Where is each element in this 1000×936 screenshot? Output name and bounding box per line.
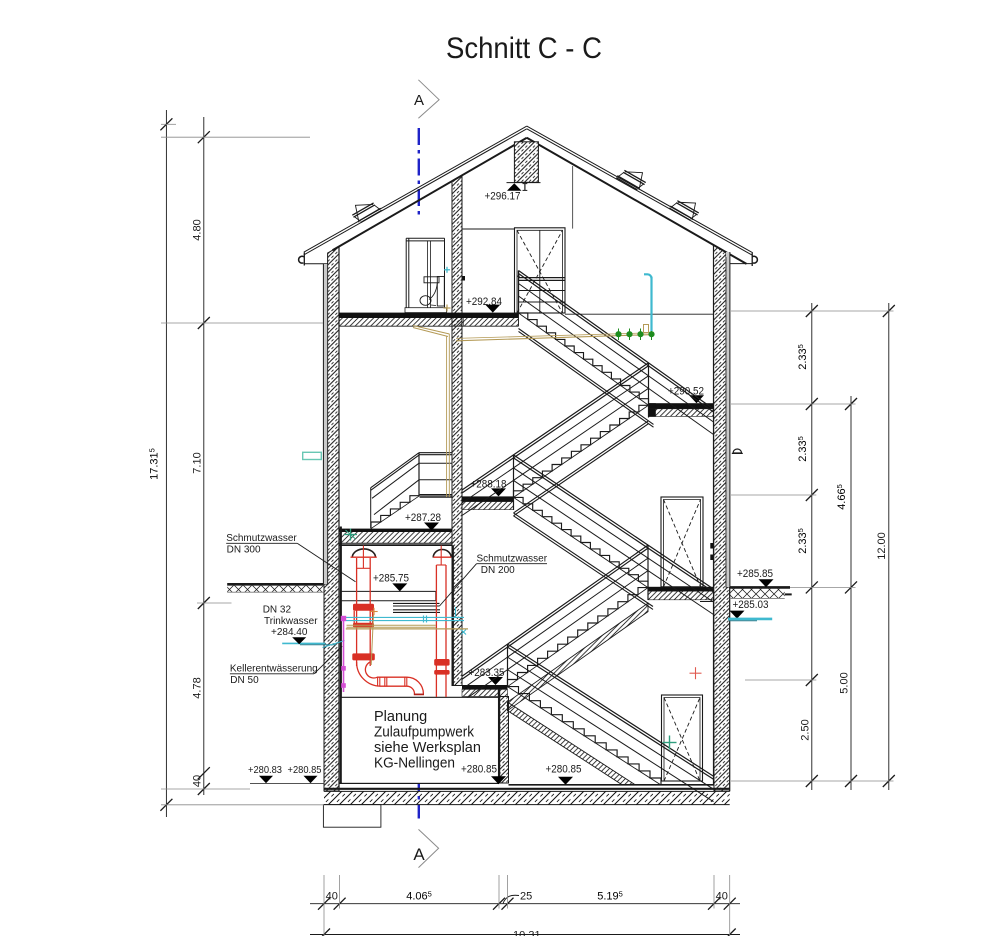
svg-text:+280.85: +280.85: [288, 764, 322, 776]
svg-text:+285.03: +285.03: [733, 599, 769, 611]
svg-text:2.335: 2.335: [796, 528, 809, 554]
svg-text:7.10: 7.10: [191, 452, 203, 473]
svg-text:Schmutzwasser: Schmutzwasser: [226, 533, 297, 544]
svg-text:+280.83: +280.83: [248, 764, 282, 776]
svg-text:4.80: 4.80: [191, 219, 203, 240]
svg-text:A: A: [414, 92, 424, 109]
svg-text:+284.40: +284.40: [271, 627, 308, 638]
svg-text:5.195: 5.195: [597, 890, 623, 903]
svg-text:DN 32: DN 32: [263, 604, 292, 615]
svg-text:Schmutzwasser: Schmutzwasser: [477, 554, 548, 565]
svg-text:Trinkwasser: Trinkwasser: [264, 616, 318, 627]
svg-text:2.335: 2.335: [796, 436, 809, 462]
svg-text:12.00: 12.00: [876, 532, 888, 560]
svg-text:40: 40: [716, 891, 728, 903]
svg-text:+280.85: +280.85: [546, 764, 582, 776]
svg-text:Schnitt C - C: Schnitt C - C: [446, 32, 602, 65]
svg-text:+280.85: +280.85: [461, 764, 497, 776]
svg-text:+285.75: +285.75: [373, 573, 409, 585]
svg-text:DN 50: DN 50: [230, 675, 259, 686]
svg-text:KG-Nellingen: KG-Nellingen: [374, 756, 455, 772]
svg-text:2.335: 2.335: [796, 344, 809, 370]
svg-text:5.00: 5.00: [839, 672, 851, 693]
svg-text:Planung: Planung: [374, 709, 427, 725]
svg-text:10.31: 10.31: [513, 930, 541, 936]
svg-text:+285.85: +285.85: [737, 568, 773, 580]
svg-text:A: A: [413, 845, 425, 864]
svg-text:+287.28: +287.28: [405, 512, 441, 524]
svg-text:17.315: 17.315: [148, 448, 161, 480]
svg-text:DN 300: DN 300: [227, 545, 261, 556]
svg-text:2.50: 2.50: [799, 719, 811, 740]
svg-text:4.78: 4.78: [191, 677, 203, 698]
svg-text:4.665: 4.665: [835, 484, 848, 510]
svg-text:4.065: 4.065: [406, 890, 432, 903]
svg-text:+296.17: +296.17: [485, 191, 521, 203]
svg-text:40: 40: [191, 775, 203, 787]
svg-text:25: 25: [520, 891, 532, 903]
svg-text:Zulaufpumpwerk: Zulaufpumpwerk: [374, 725, 475, 741]
svg-text:40: 40: [326, 891, 338, 903]
svg-text:DN 200: DN 200: [481, 565, 515, 576]
svg-text:Kellerentwässerung: Kellerentwässerung: [230, 664, 318, 675]
svg-text:siehe Werksplan: siehe Werksplan: [374, 740, 481, 756]
